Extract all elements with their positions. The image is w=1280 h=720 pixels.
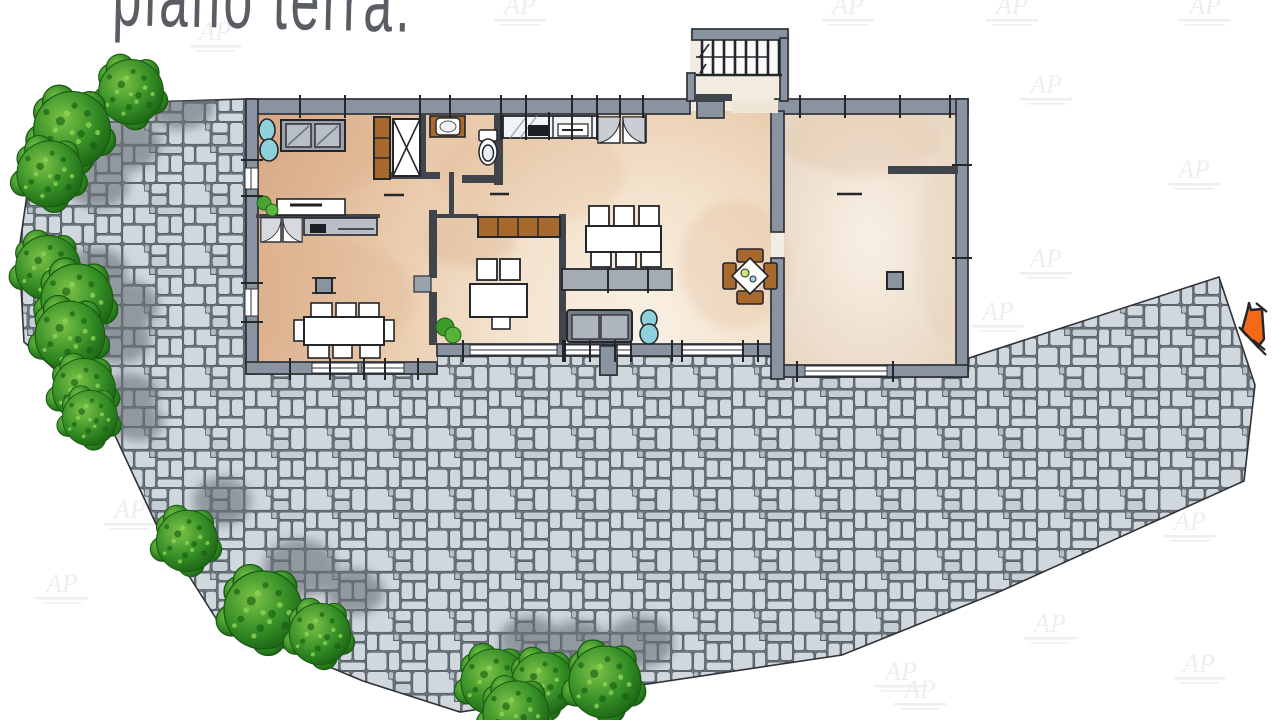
svg-text:piano terra:: piano terra: (112, 0, 415, 50)
